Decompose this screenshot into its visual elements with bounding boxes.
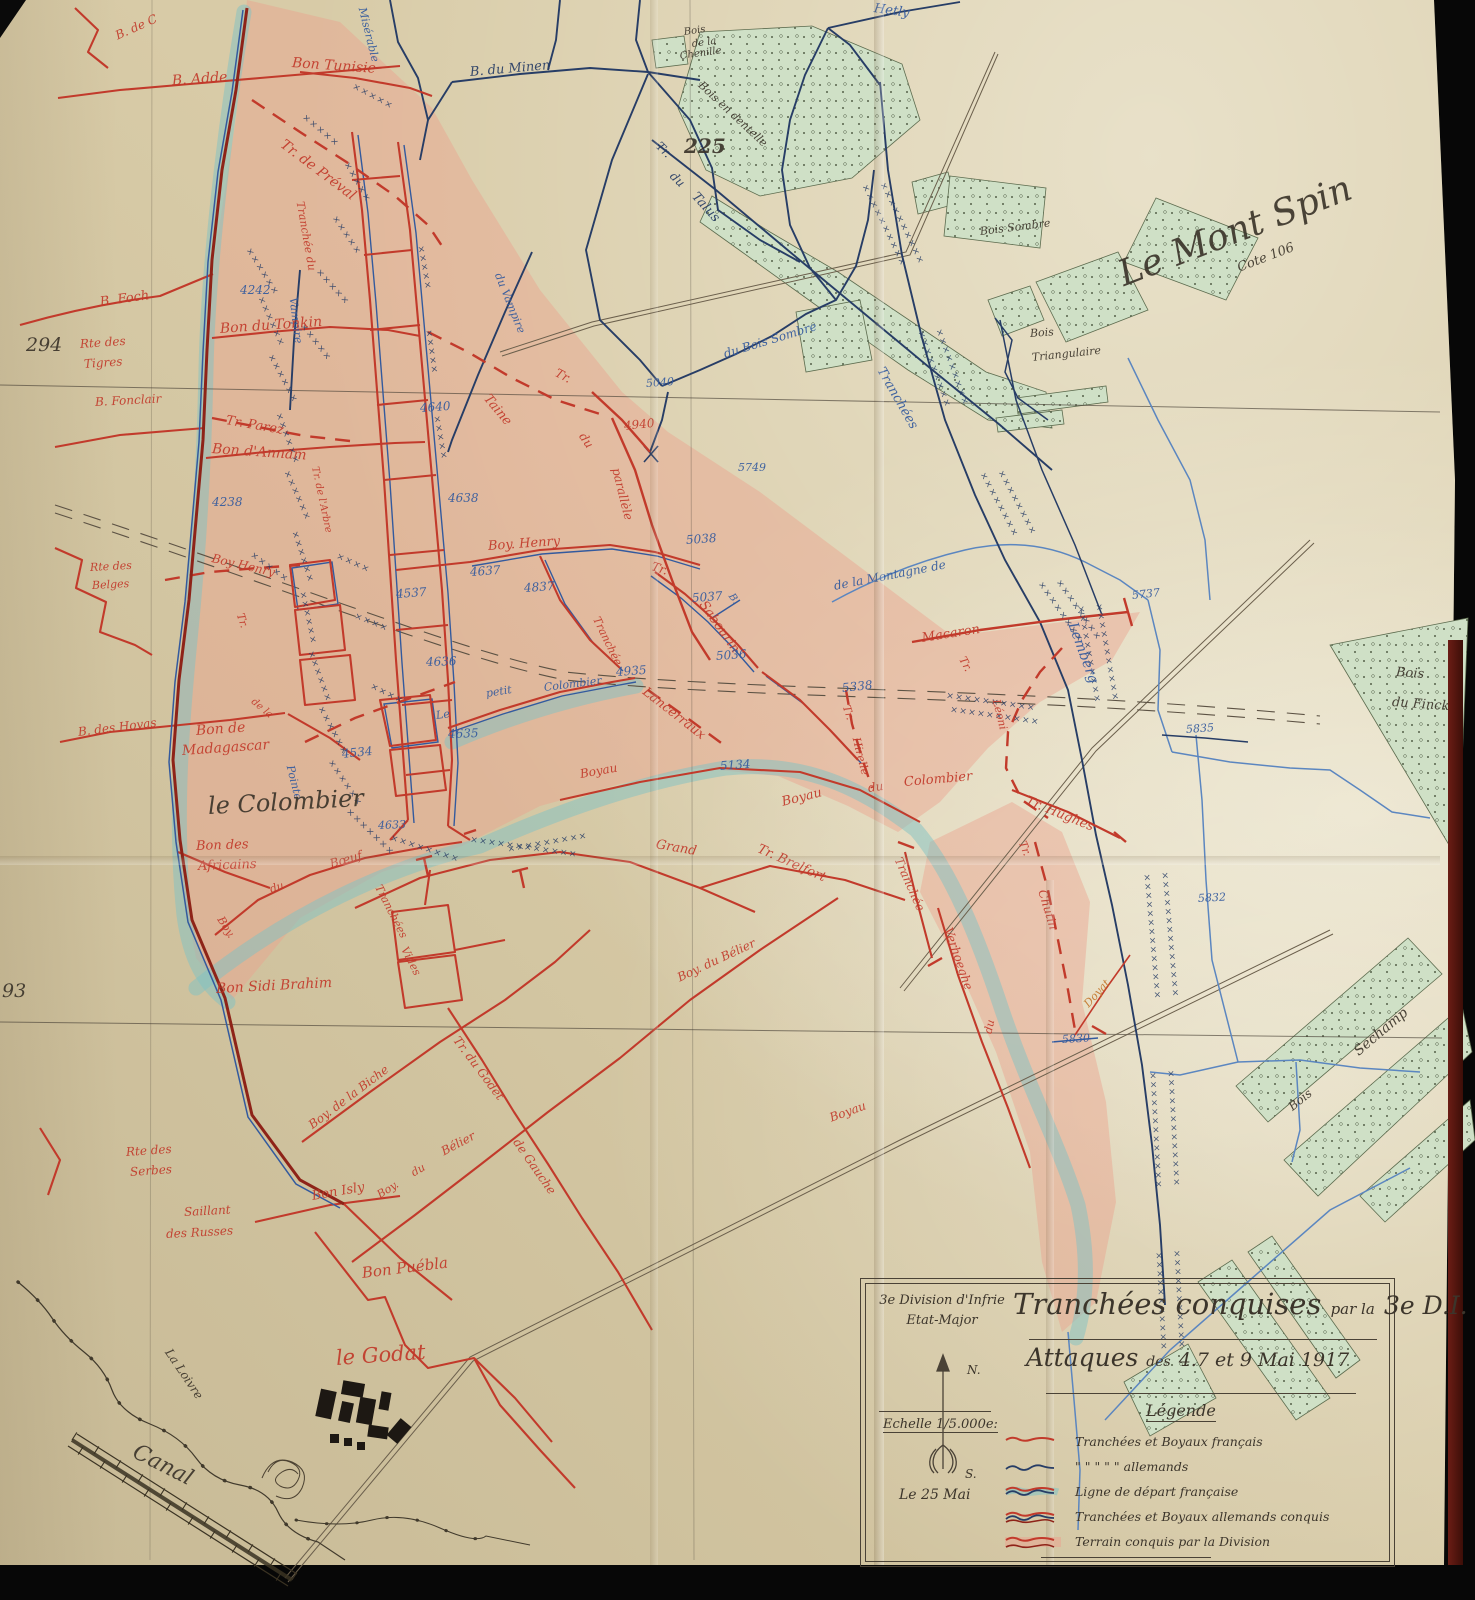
title-unit: 3e D.I. <box>1384 1291 1468 1320</box>
legend-label: Tranchées et Boyaux allemands conquis <box>1075 1509 1329 1524</box>
legend-row: Tranchées et Boyaux allemands conquis <box>1003 1504 1383 1529</box>
division-heading: 3e Division d'Infrie Etat-Major <box>877 1291 1007 1330</box>
division-line1: 3e Division d'Infrie <box>877 1291 1007 1311</box>
scale-text: Echelle 1/5.000e: <box>883 1417 998 1433</box>
legend-sample <box>1003 1509 1065 1525</box>
legend-label: Tranchées et Boyaux français <box>1075 1434 1263 1449</box>
subtitle-rule <box>1046 1393 1356 1394</box>
la-loivre-stream <box>18 1282 530 1560</box>
title-main: Tranchées conquises <box>1013 1287 1321 1321</box>
map-subtitle: Attaques des 4.7 et 9 Mai 1917 <box>1026 1343 1349 1372</box>
legend-sample <box>1003 1534 1065 1550</box>
title-sub: par la <box>1331 1300 1375 1318</box>
legend-sample <box>1003 1434 1065 1450</box>
attack-word: Attaques <box>1026 1343 1138 1372</box>
compass-south-label: S. <box>965 1467 977 1481</box>
attack-dates: 4.7 et 9 Mai 1917 <box>1179 1349 1350 1371</box>
wire-marks: ××××××××××××× <box>1165 1070 1181 1188</box>
legend-flourish <box>1041 1557 1211 1558</box>
title-rule <box>1029 1339 1377 1340</box>
legend-row: Tranchées et Boyaux français <box>1003 1429 1383 1454</box>
legend-row: Terrain conquis par la Division <box>1003 1529 1383 1554</box>
scale-rule <box>879 1411 991 1412</box>
legend-label: Terrain conquis par la Division <box>1075 1534 1270 1549</box>
map-photo: ××××××××××××××××××××××××××××××××××××××××… <box>0 0 1475 1600</box>
compass-north-label: N. <box>967 1363 981 1377</box>
wire-marks: ×××××××××××××× <box>1141 873 1162 1000</box>
date-text: Le 25 Mai <box>899 1487 970 1503</box>
wire-marks: ×××××××××××××× <box>1159 871 1180 998</box>
legend-title: Légende <box>1146 1401 1216 1422</box>
legend-row: " " " " " allemands <box>1003 1454 1383 1479</box>
title-block: 3e Division d'Infrie Etat-Major Tranchée… <box>860 1278 1395 1567</box>
map-title: Tranchées conquises par la 3e D.I. <box>1013 1287 1468 1321</box>
legend-sample <box>1003 1459 1065 1475</box>
legend-row: Ligne de départ française <box>1003 1479 1383 1504</box>
canal-ticks <box>72 1432 297 1580</box>
attack-des: des <box>1146 1354 1170 1370</box>
godat-buildings <box>315 1380 411 1450</box>
book-spine-edge <box>1448 640 1463 1565</box>
legend-label: " " " " " allemands <box>1075 1459 1188 1474</box>
legend-sample <box>1003 1484 1065 1500</box>
division-line2: Etat-Major <box>877 1311 1007 1331</box>
legend: Tranchées et Boyaux français " " " " " a… <box>1003 1429 1383 1554</box>
legend-label: Ligne de départ française <box>1075 1484 1238 1499</box>
contour-knot <box>262 1460 304 1499</box>
